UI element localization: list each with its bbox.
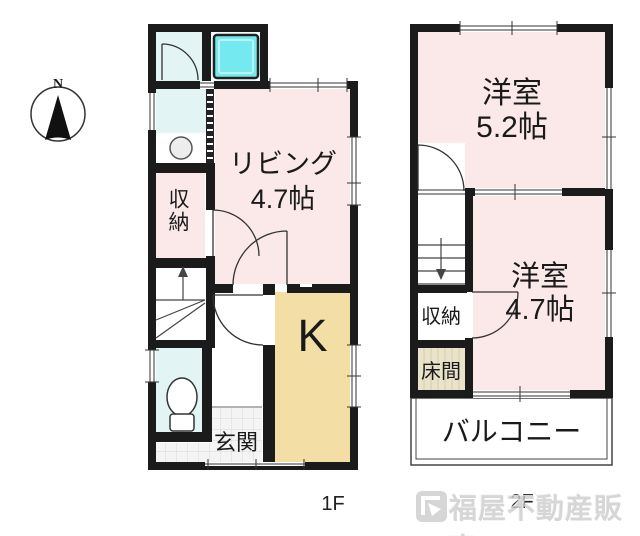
compass-north-icon (31, 87, 85, 141)
western2-size: 4.7帖 (473, 295, 607, 325)
toilet-icon (167, 378, 197, 431)
floorplan-canvas: リビング 4.7帖 収納 K 玄関 洋室 5.2帖 洋室 4.7帖 収納 床間 … (0, 0, 640, 536)
entrance-tiles-2 (156, 443, 212, 462)
bathtub-icon (214, 35, 258, 78)
western1-door-swing (418, 143, 465, 188)
floor1-label: 1F (318, 494, 348, 515)
stairs-down-arrow-icon (436, 269, 446, 280)
compass-north-label: N (44, 78, 72, 93)
washroom-area (156, 89, 206, 133)
western1-size: 5.2帖 (418, 112, 606, 144)
balcony-label: バルコニー (411, 417, 612, 446)
bathroom-area (156, 32, 202, 81)
entrance-label: 玄関 (208, 431, 264, 454)
living-room-size: 4.7帖 (215, 185, 351, 213)
watermark: 福屋不動産販売 (412, 487, 640, 536)
storage-1f-label: 収納 (166, 188, 188, 234)
tokonoma-label: 床間 (416, 362, 466, 383)
kitchen-label: K (275, 312, 350, 359)
western1-name: 洋室 (418, 78, 606, 110)
western2-area (473, 196, 605, 390)
western2-name: 洋室 (473, 262, 607, 292)
sliding-door-hatch (206, 89, 214, 163)
stairs-1f (156, 268, 205, 338)
washing-machine-icon (170, 137, 192, 159)
storage-2f-label: 収納 (416, 307, 466, 328)
living-room-name: リビング (215, 150, 351, 178)
watermark-company-text: 福屋不動産販売 (449, 487, 640, 536)
